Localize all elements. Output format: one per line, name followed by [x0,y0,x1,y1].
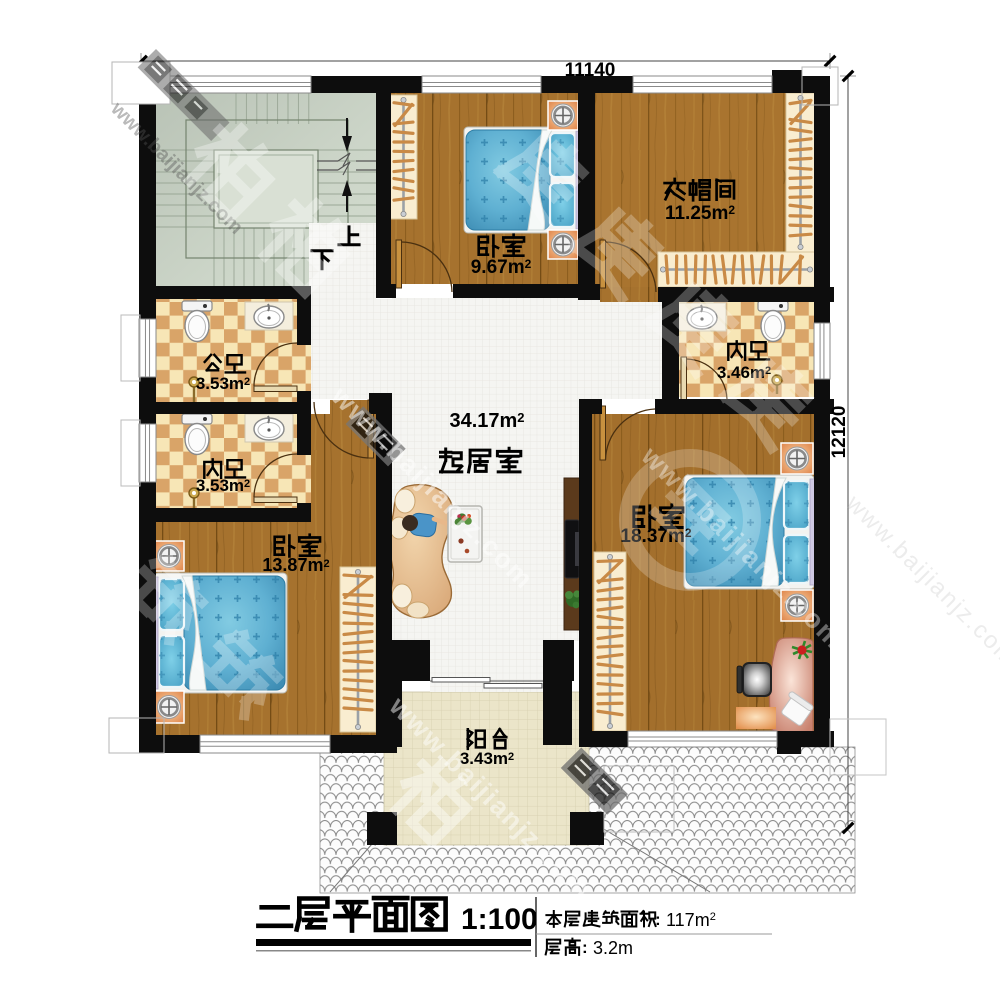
svg-text:3.2m: 3.2m [593,938,633,958]
svg-text:117m2: 117m2 [666,910,716,930]
svg-text::: : [582,938,588,957]
svg-text:12120: 12120 [829,406,850,459]
svg-text:11140: 11140 [565,60,616,81]
svg-text::: : [655,910,661,929]
svg-text:1:100: 1:100 [461,903,538,936]
svg-text:9.67m2: 9.67m2 [471,257,532,278]
svg-text:3.53m2: 3.53m2 [196,374,250,393]
svg-text:3.53m2: 3.53m2 [196,476,250,495]
svg-text:13.87m2: 13.87m2 [262,555,329,575]
svg-text:34.17m2: 34.17m2 [449,410,524,432]
svg-text:11.25m2: 11.25m2 [665,203,735,224]
